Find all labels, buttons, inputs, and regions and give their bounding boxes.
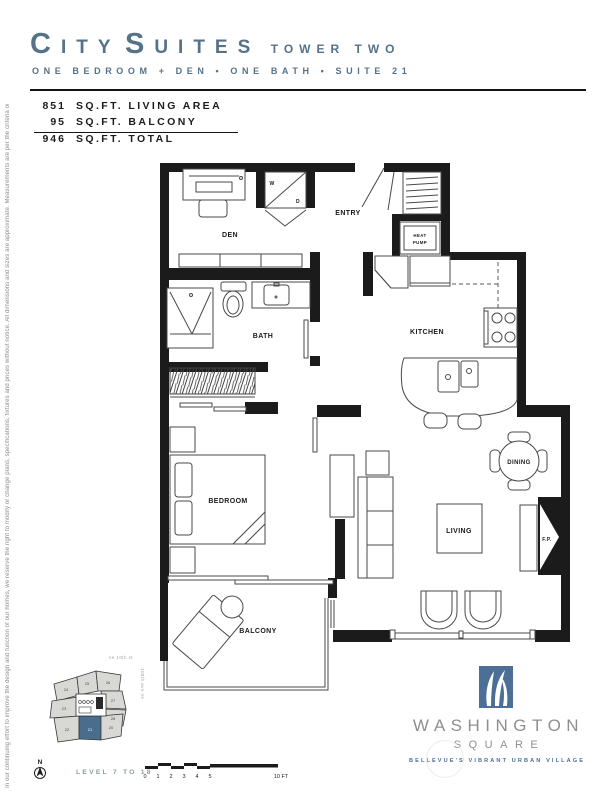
title-word-suites: SUITES — [125, 28, 260, 61]
room-label-kitchen: KITCHEN — [410, 329, 444, 336]
logo-watermark-circle — [426, 740, 464, 778]
entry-closet — [403, 172, 441, 214]
stat-total-value: 946 — [34, 133, 76, 145]
room-label-dryer: D — [296, 199, 300, 205]
legal-disclaimer: In our continuing effort to improve the … — [5, 104, 14, 788]
logo-tagline: BELLEVUE'S VIBRANT URBAN VILLAGE — [385, 758, 607, 764]
stat-balcony: 95 SQ.FT. BALCONY — [34, 116, 238, 133]
scale-bar: 0 1 2 3 4 5 10 FT — [135, 752, 300, 784]
stat-living-label: SQ.FT. LIVING AREA — [76, 100, 222, 112]
room-label-dining: DINING — [507, 460, 530, 466]
kitchen-island — [401, 358, 517, 416]
room-label-bath: BATH — [253, 333, 274, 340]
side-table — [366, 451, 389, 475]
unit-number-25: 25 — [85, 681, 90, 686]
floor-plan: W D HEAT PUMP — [150, 143, 612, 699]
logo-name-line2: SQUARE — [385, 739, 607, 751]
logo-leaf-mark — [479, 666, 513, 708]
scale-tick-3: 3 — [182, 774, 185, 780]
den-sofa — [179, 254, 302, 267]
unit-number-22: 22 — [65, 727, 70, 732]
stat-balcony-value: 95 — [34, 116, 76, 128]
unit-number-20: 20 — [109, 725, 114, 730]
title-tower: TOWER TWO — [271, 42, 401, 56]
logo-name-line1: WASHINGTON — [385, 716, 607, 736]
stat-living-value: 851 — [34, 100, 76, 112]
room-label-washer: W — [269, 181, 274, 187]
room-label-pump: PUMP — [413, 240, 427, 245]
key-plan: ne 10th st 108th ave ne 24 25 26 27 23 2… — [22, 645, 150, 787]
balcony-table — [221, 596, 243, 618]
room-label-heat: HEAT — [413, 233, 426, 238]
den-desk — [183, 169, 245, 217]
unit-number-28: 28 — [111, 716, 116, 721]
shower — [167, 288, 213, 348]
refrigerator — [410, 256, 450, 286]
unit-number-24: 24 — [64, 687, 69, 692]
kitchen-corner-cabinet — [375, 256, 408, 288]
scale-tick-0: 0 — [143, 774, 146, 780]
unit-number-21: 21 — [88, 727, 93, 732]
stove — [484, 308, 517, 347]
suite-subtitle: ONE BEDROOM + DEN • ONE BATH • SUITE 21 — [32, 66, 411, 76]
room-label-balcony: BALCONY — [239, 628, 276, 635]
sofa — [358, 477, 393, 578]
room-label-living: LIVING — [446, 528, 472, 535]
room-label-entry: ENTRY — [335, 210, 360, 217]
washington-square-logo: WASHINGTON SQUARE BELLEVUE'S VIBRANT URB… — [385, 666, 607, 786]
bath-vanity — [252, 282, 310, 308]
header-divider — [30, 89, 586, 91]
wardrobe — [330, 455, 354, 517]
unit-number-23: 23 — [62, 706, 67, 711]
armchairs — [421, 591, 501, 629]
bedroom-closet — [170, 368, 255, 397]
floorplan-brochure-page: CITY SUITES TOWER TWO ONE BEDROOM + DEN … — [0, 0, 612, 792]
street-label-right: 108th ave ne — [140, 668, 145, 699]
unit-number-26: 26 — [106, 680, 111, 685]
stat-balcony-label: SQ.FT. BALCONY — [76, 116, 197, 128]
room-label-den: DEN — [222, 232, 238, 239]
toilet — [221, 282, 246, 317]
north-arrow-icon: N — [35, 759, 46, 779]
north-label: N — [38, 759, 43, 766]
scale-tick-4: 4 — [195, 774, 198, 780]
title-word-city: CITY — [30, 28, 121, 61]
room-label-bedroom: BEDROOM — [208, 498, 247, 505]
page-title: CITY SUITES TOWER TWO — [30, 28, 401, 61]
scale-tick-1: 1 — [156, 774, 159, 780]
stat-living-area: 851 SQ.FT. LIVING AREA — [34, 100, 238, 116]
street-label-top: ne 10th st — [109, 655, 133, 660]
heat-pump-closet: HEAT PUMP — [400, 222, 440, 254]
scale-end-label: 10 FT — [274, 774, 289, 780]
scale-tick-5: 5 — [208, 774, 211, 780]
room-label-fireplace: F.P. — [542, 537, 552, 543]
unit-number-27: 27 — [111, 698, 116, 703]
scale-tick-2: 2 — [169, 774, 172, 780]
area-statistics: 851 SQ.FT. LIVING AREA 95 SQ.FT. BALCONY… — [34, 100, 238, 149]
washer-dryer-closet: W D — [265, 172, 306, 226]
